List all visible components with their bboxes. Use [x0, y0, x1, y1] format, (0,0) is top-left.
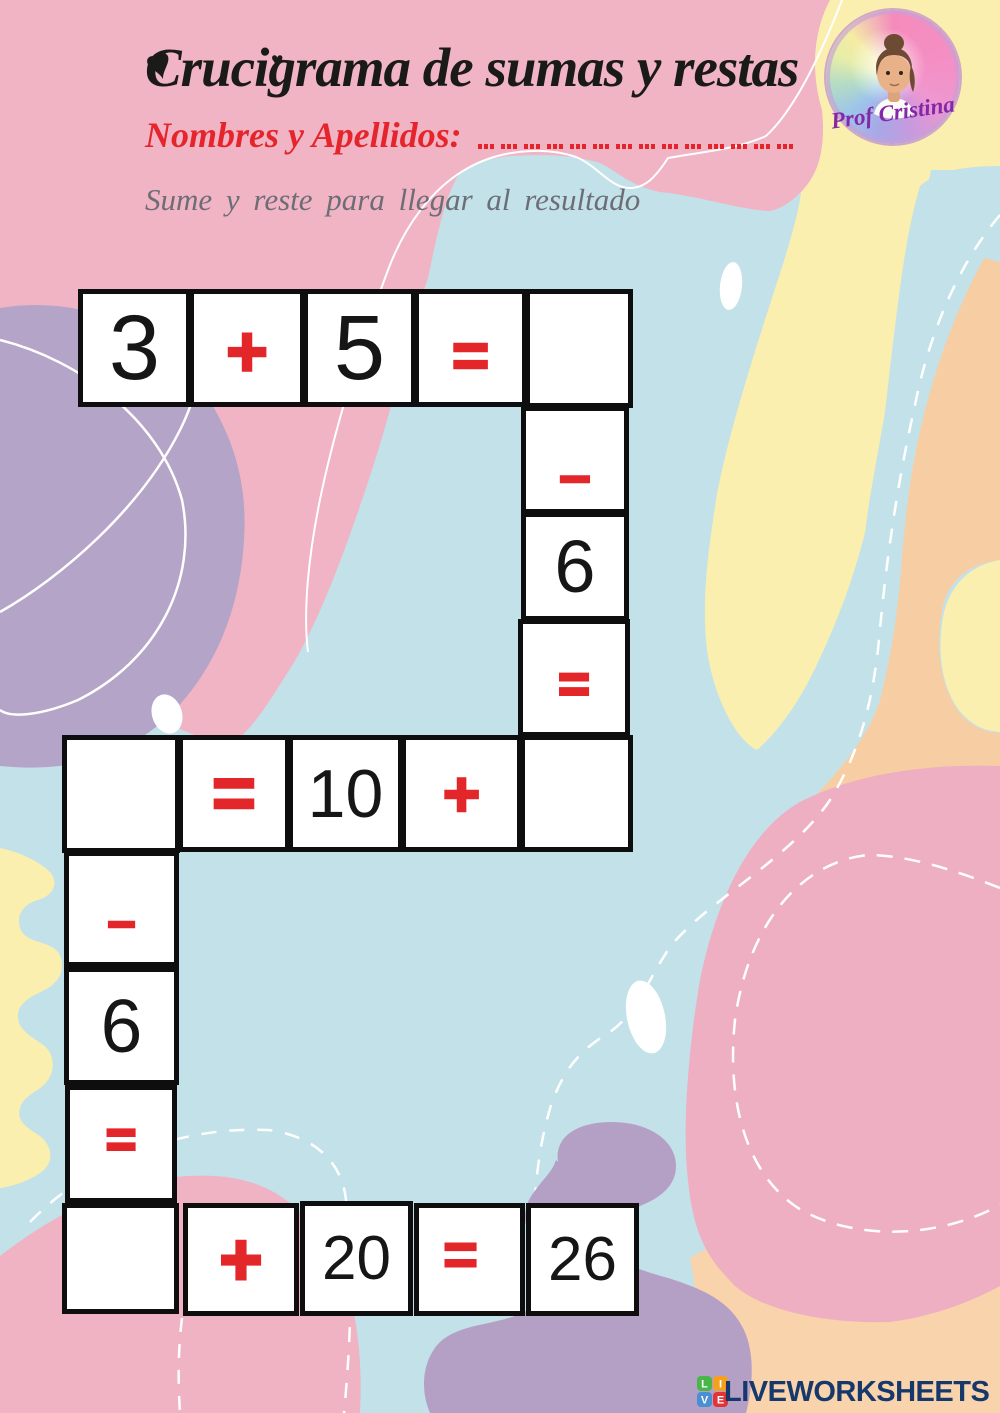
svg-text:I: I — [719, 1379, 722, 1391]
svg-text:L: L — [701, 1379, 708, 1391]
svg-text:V: V — [701, 1395, 709, 1407]
